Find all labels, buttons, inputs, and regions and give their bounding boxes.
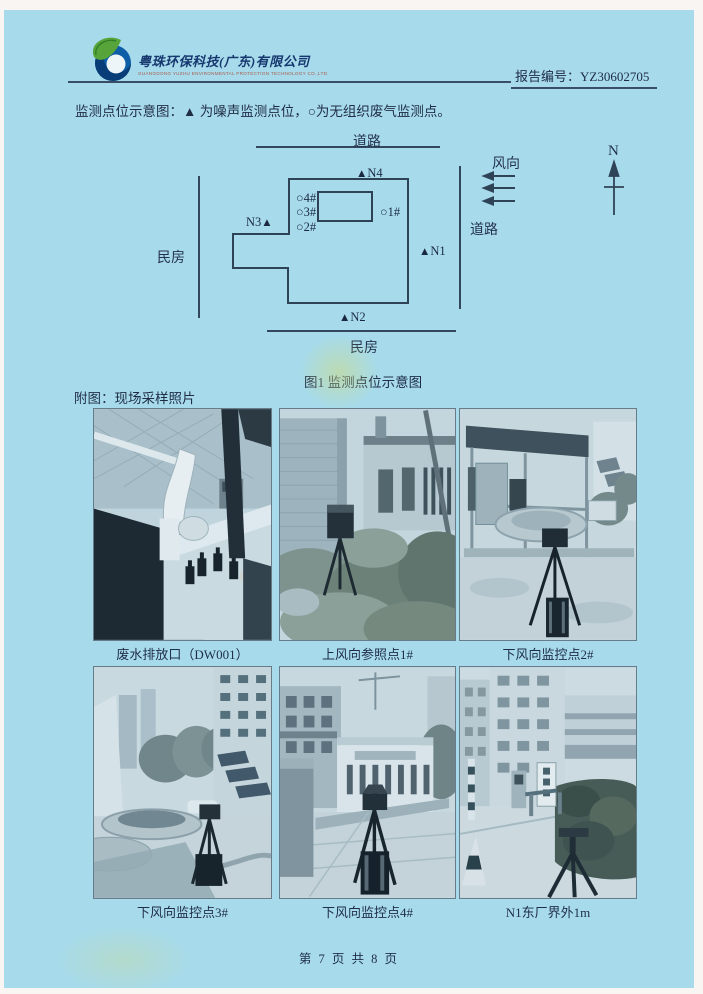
photos-section-title: 附图：现场采样照片 <box>74 387 196 407</box>
road-right-label: 道路 <box>470 219 498 239</box>
figure-n1-east-boundary: N1东厂界外1m <box>459 666 637 921</box>
house-left-label: 民房 <box>157 247 185 267</box>
figure-upwind-ref-1: 上风向参照点1# <box>279 408 456 663</box>
marker-label: N2 <box>350 310 365 324</box>
figure-downwind-2: 下风向监控点2# <box>459 408 637 663</box>
north-label: N <box>608 143 619 160</box>
photo-caption: 下风向监控点2# <box>459 644 637 663</box>
figure-downwind-3: 下风向监控点3# <box>93 666 272 921</box>
noise-marker-n4: ▲N4 <box>356 166 383 181</box>
photo-upwind-ref-1 <box>279 408 456 641</box>
gas-point-icon: ○ <box>296 205 304 219</box>
figure-wastewater-outlet: 废水排放口（DW001） <box>93 408 272 663</box>
marker-label: 4# <box>304 191 317 205</box>
north-arrow-icon <box>604 162 624 215</box>
photo-caption: 上风向参照点1# <box>279 644 456 663</box>
photo-downwind-2 <box>459 408 637 641</box>
marker-label: 3# <box>304 205 317 219</box>
noise-point-icon: ▲ <box>356 168 367 180</box>
noise-point-icon: ▲ <box>339 312 350 324</box>
wind-arrows-icon <box>484 173 515 205</box>
monitoring-diagram: 道路 风向 N 道路 民房 民房 ▲N4 N3▲ ▲N1 ▲N2 ○4# ○3#… <box>4 10 694 410</box>
marker-label: 2# <box>304 220 317 234</box>
road-top-label: 道路 <box>353 131 381 151</box>
gas-marker-4: ○4# <box>296 191 316 206</box>
report-page: 粤珠环保科技(广东)有限公司 GUANGDONG YUZHU ENVIRONME… <box>4 10 694 988</box>
gas-point-icon: ○ <box>380 205 388 219</box>
noise-point-icon: ▲ <box>261 217 272 229</box>
noise-point-icon: ▲ <box>419 246 430 258</box>
factory-boundary <box>233 179 408 303</box>
gas-point-icon: ○ <box>296 220 304 234</box>
photo-art <box>280 409 455 640</box>
photo-n1-east-boundary <box>459 666 637 899</box>
photo-art <box>460 667 636 898</box>
noise-marker-n2: ▲N2 <box>339 310 366 325</box>
building-rect <box>318 192 372 221</box>
photo-caption: N1东厂界外1m <box>459 902 637 921</box>
diagram-lines <box>186 130 636 342</box>
figure-downwind-4: 下风向监控点4# <box>279 666 456 921</box>
gas-point-icon: ○ <box>296 191 304 205</box>
noise-marker-n1: ▲N1 <box>419 244 446 259</box>
marker-label: 1# <box>388 205 401 219</box>
photo-downwind-3 <box>93 666 272 899</box>
photo-art <box>460 409 636 640</box>
marker-label: N4 <box>367 166 382 180</box>
figure-caption: 图1 监测点位示意图 <box>304 371 422 391</box>
photo-caption: 废水排放口（DW001） <box>93 644 272 663</box>
photo-wastewater-outlet <box>93 408 272 641</box>
photo-caption: 下风向监控点4# <box>279 902 456 921</box>
noise-marker-n3: N3▲ <box>246 215 273 230</box>
page-footer: 第 7 页 共 8 页 <box>4 948 694 967</box>
marker-label: N3 <box>246 215 261 229</box>
gas-marker-3: ○3# <box>296 205 316 220</box>
marker-label: N1 <box>430 244 445 258</box>
gas-marker-1: ○1# <box>380 205 400 220</box>
house-bottom-label: 民房 <box>350 337 378 357</box>
photo-art <box>280 667 455 898</box>
gas-marker-2: ○2# <box>296 220 316 235</box>
photo-art <box>94 667 271 898</box>
photo-downwind-4 <box>279 666 456 899</box>
photo-art <box>94 409 271 640</box>
photo-caption: 下风向监控点3# <box>93 902 272 921</box>
wind-label: 风向 <box>492 153 520 173</box>
